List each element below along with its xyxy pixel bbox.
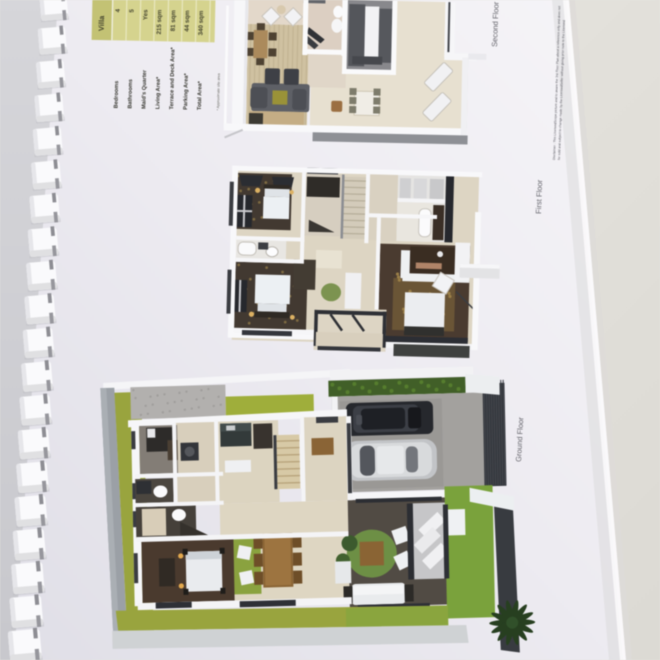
svg-text:Bathrooms: Bathrooms <box>127 79 134 109</box>
svg-text:Maid’s Quarter: Maid’s Quarter <box>141 69 148 109</box>
svg-text:Second Floor: Second Floor <box>490 1 501 47</box>
svg-text:Bedrooms: Bedrooms <box>114 81 121 109</box>
svg-text:215 sqm: 215 sqm <box>156 9 164 34</box>
svg-text:Total Area*: Total Area* <box>197 80 204 110</box>
svg-text:340 sqm: 340 sqm <box>198 10 206 35</box>
svg-text:44 sqm: 44 sqm <box>184 10 191 32</box>
svg-text:81 sqm: 81 sqm <box>170 9 177 31</box>
svg-text:* Approximate site area: * Approximate site area <box>216 73 221 110</box>
svg-text:Living Area*: Living Area* <box>155 76 162 109</box>
svg-text:Villa: Villa <box>97 15 106 31</box>
svg-text:First Floor: First Floor <box>534 179 544 214</box>
svg-text:Parking Area*: Parking Area* <box>183 72 190 109</box>
svg-text:Yes: Yes <box>142 9 149 20</box>
